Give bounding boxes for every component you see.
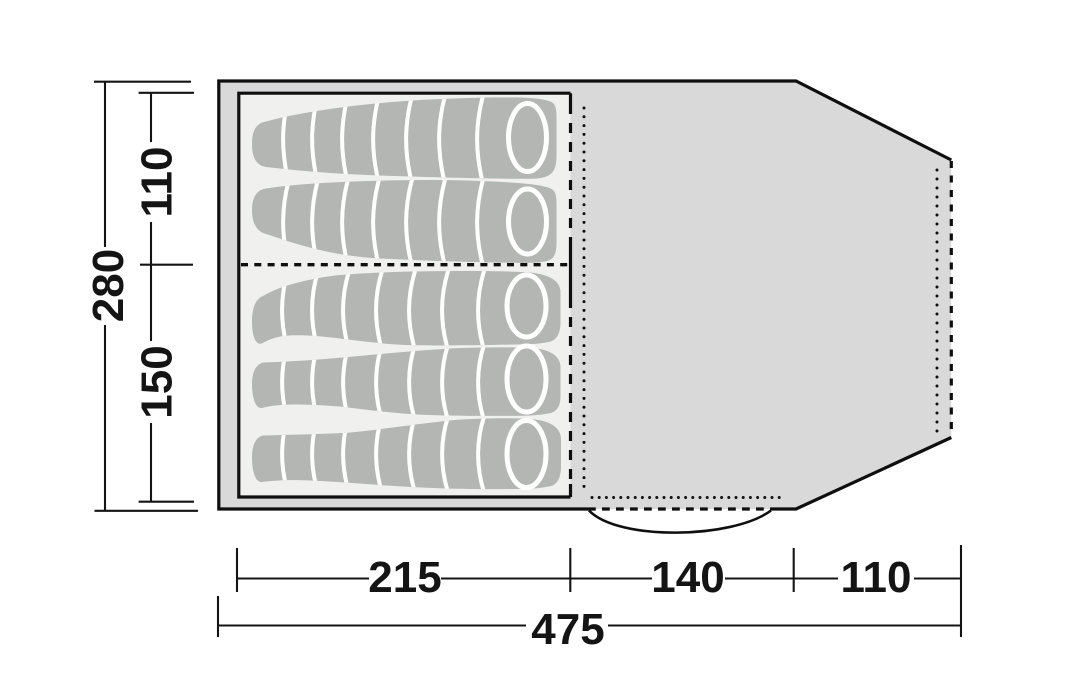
svg-text:140: 140	[651, 553, 724, 602]
svg-text:215: 215	[368, 553, 441, 602]
svg-text:280: 280	[84, 249, 133, 322]
svg-text:110: 110	[133, 147, 182, 218]
svg-text:110: 110	[841, 553, 912, 602]
svg-text:150: 150	[133, 345, 182, 418]
svg-text:475: 475	[531, 605, 604, 654]
